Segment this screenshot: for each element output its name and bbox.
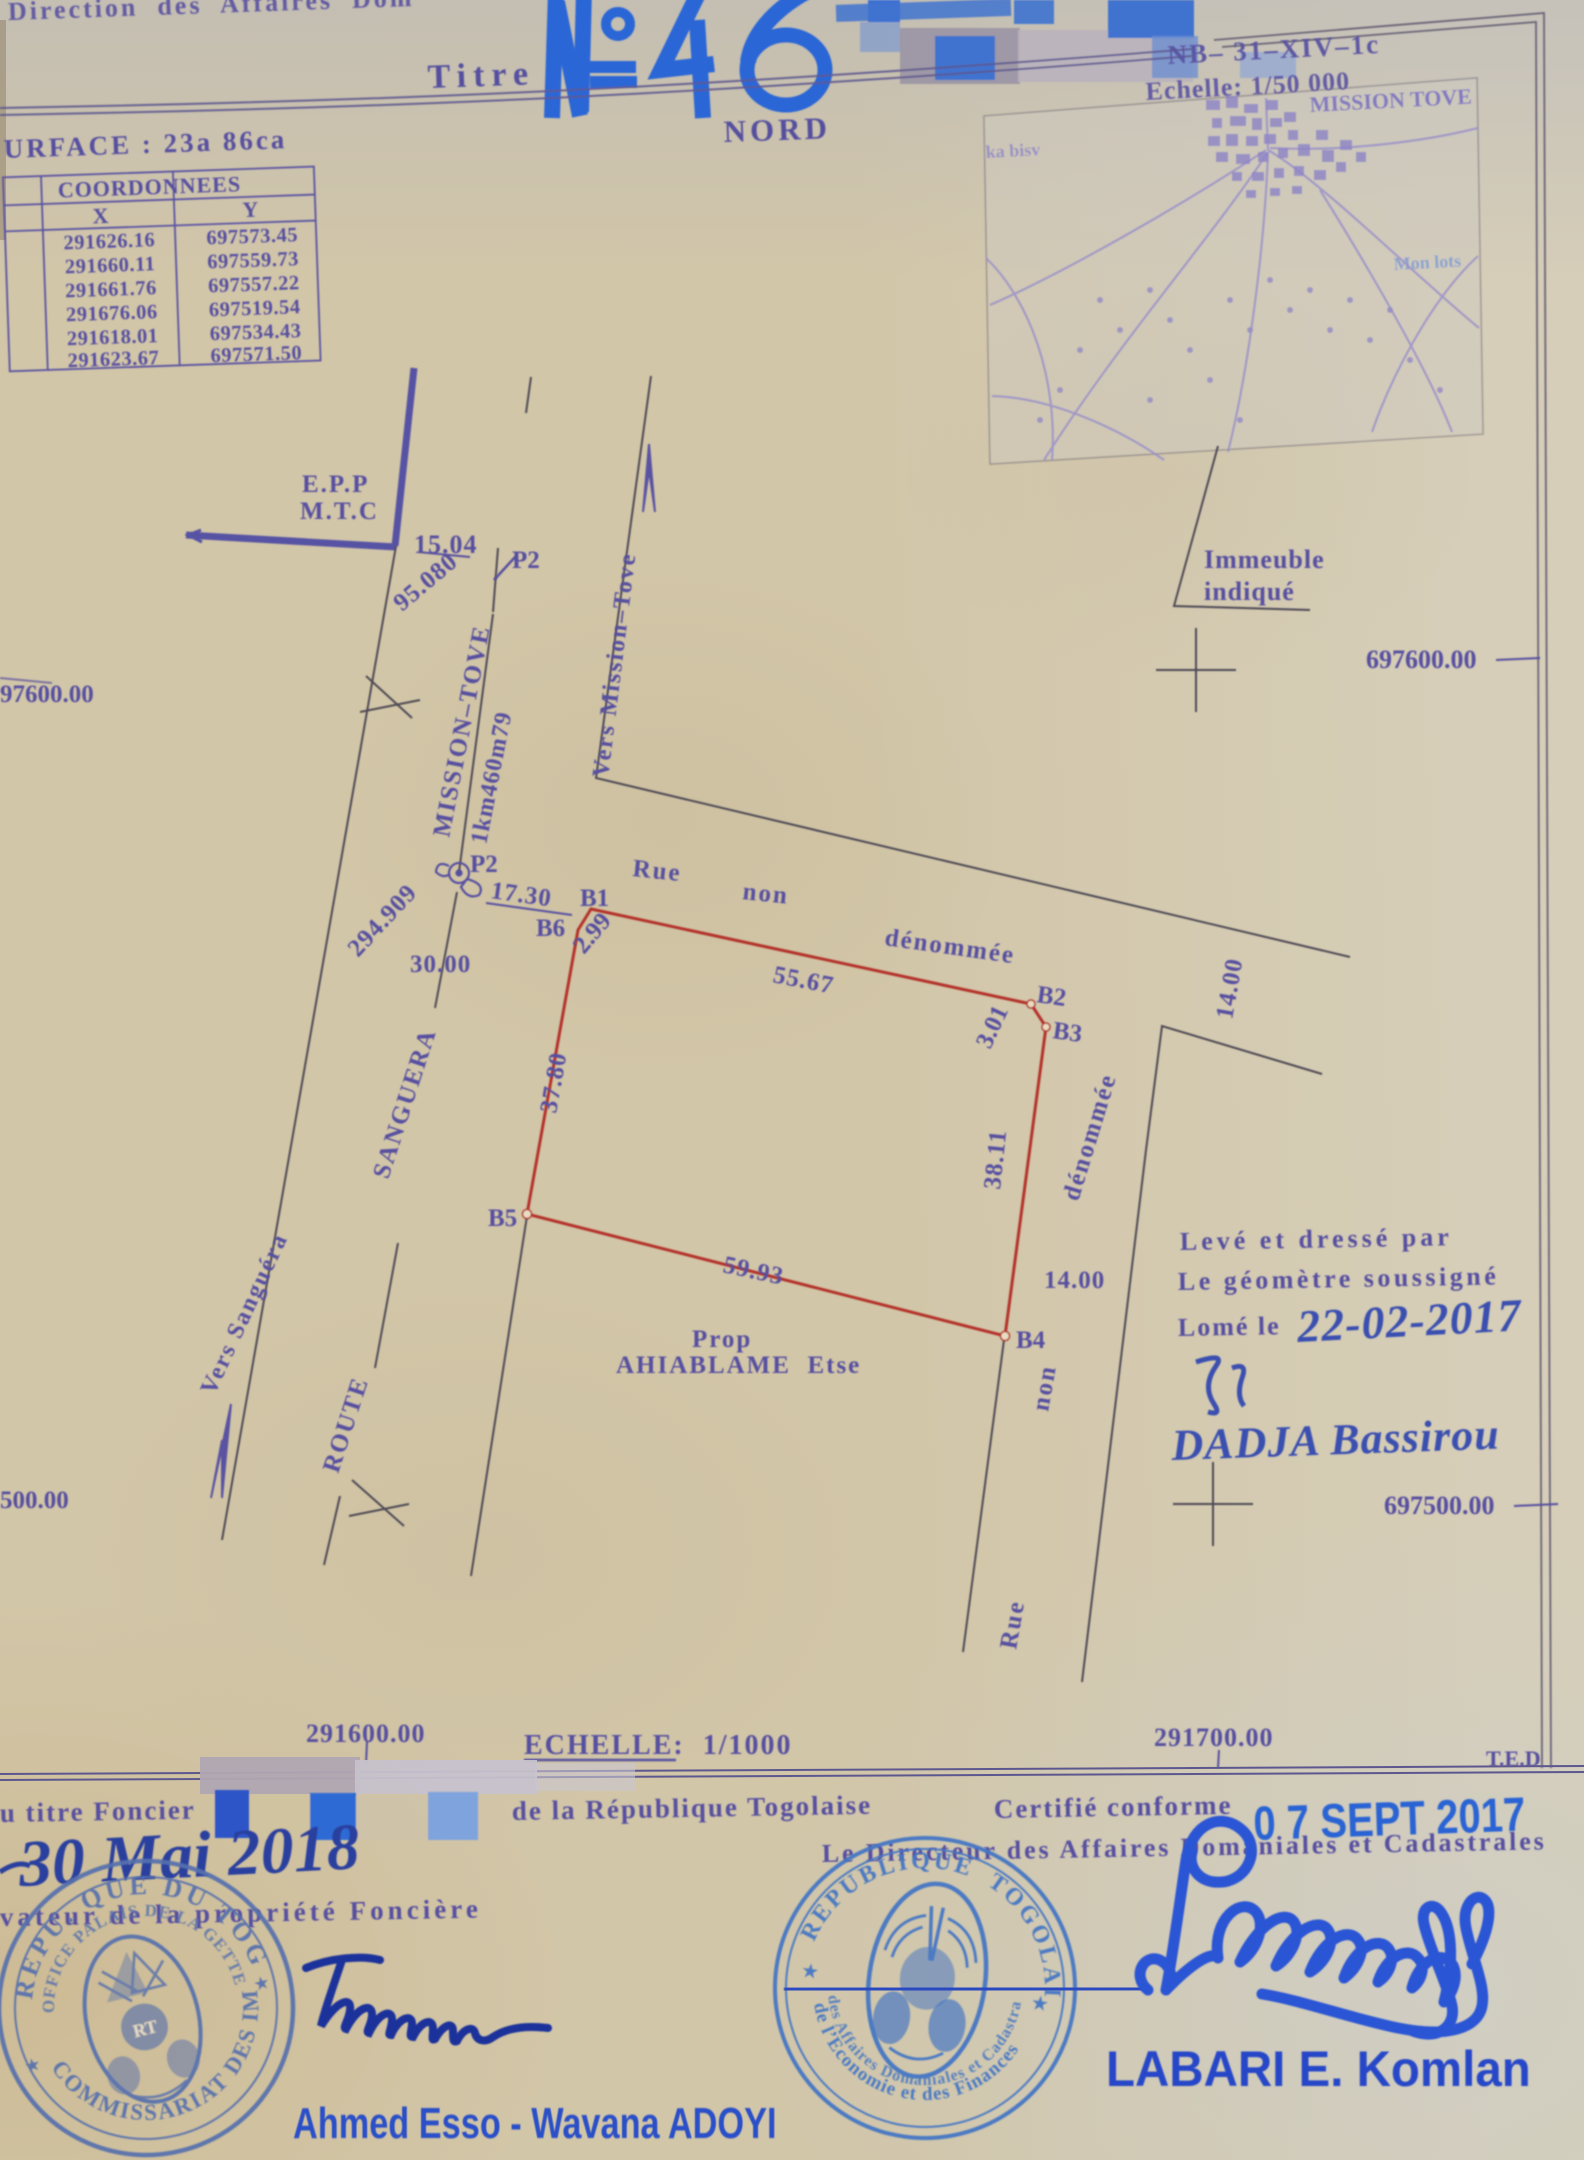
svg-text:Vers Mission–Tove: Vers Mission–Tove [588, 551, 641, 779]
svg-text:P2: P2 [512, 547, 540, 574]
svg-text:★: ★ [22, 2053, 42, 2076]
svg-text:3.01: 3.01 [971, 1001, 1014, 1052]
svg-text:de la République Togolaise: de la République Togolaise [512, 1790, 873, 1826]
svg-text:97600.00: 97600.00 [0, 681, 94, 708]
svg-text:B5: B5 [488, 1205, 517, 1232]
svg-text:LABARI E. Komlan: LABARI E. Komlan [1106, 2042, 1531, 2097]
svg-text:Titre: Titre [427, 55, 536, 96]
svg-text:NORD: NORD [723, 110, 831, 149]
svg-text:Rue: Rue [995, 1598, 1030, 1651]
svg-text:697519.54: 697519.54 [209, 296, 301, 321]
svg-text:Direction des Affaires Dom: Direction des Affaires Dom [7, 0, 414, 26]
svg-text:B6: B6 [536, 915, 565, 942]
svg-text:★: ★ [1029, 1992, 1050, 2016]
svg-text:Certifié conforme: Certifié conforme [994, 1790, 1233, 1824]
svg-text:URFACE : 23a 86ca: URFACE : 23a 86ca [3, 124, 288, 164]
svg-text:non: non [741, 878, 790, 910]
svg-text:291618.01: 291618.01 [67, 325, 159, 350]
svg-text:291623.67: 291623.67 [67, 347, 159, 372]
svg-text:NB– 31–XIV–1c: NB– 31–XIV–1c [1167, 29, 1381, 70]
svg-text:Rue: Rue [631, 855, 683, 887]
svg-text:697573.45: 697573.45 [206, 224, 298, 249]
svg-text:dénommée: dénommée [1058, 1070, 1122, 1203]
svg-text:697559.73: 697559.73 [207, 248, 299, 273]
svg-text:B2: B2 [1035, 981, 1068, 1012]
svg-text:Ahmed Esso - Wavana ADOYI: Ahmed Esso - Wavana ADOYI [293, 2099, 777, 2148]
svg-text:ECHELLE: 1/1000: ECHELLE: 1/1000 [524, 1730, 792, 1761]
svg-text:DADJA Bassirou: DADJA Bassirou [1170, 1410, 1501, 1470]
svg-text:Levé et dressé par: Levé et dressé par [1180, 1222, 1453, 1256]
svg-text:E.P.P: E.P.P [302, 471, 369, 498]
svg-text:291660.11: 291660.11 [65, 253, 156, 278]
svg-text:291676.06: 291676.06 [66, 301, 158, 326]
svg-text:697600.00: 697600.00 [1366, 645, 1477, 674]
svg-text:22-02-2017: 22-02-2017 [1295, 1289, 1524, 1352]
svg-text:indiqué: indiqué [1204, 577, 1295, 606]
svg-text:★: ★ [251, 1972, 271, 1995]
svg-text:non: non [1027, 1363, 1062, 1413]
svg-text:37.80: 37.80 [535, 1050, 572, 1115]
svg-text:Vers Sanguéra: Vers Sanguéra [196, 1229, 294, 1399]
svg-text:X: X [92, 203, 109, 229]
svg-text:Prop: Prop [692, 1326, 752, 1353]
svg-text:AHIABLAME Etse: AHIABLAME Etse [616, 1352, 861, 1379]
svg-text:59.93: 59.93 [721, 1251, 787, 1290]
svg-text:697557.22: 697557.22 [208, 272, 300, 297]
svg-text:291700.00: 291700.00 [1154, 1723, 1274, 1752]
svg-text:ROUTE: ROUTE [318, 1373, 374, 1475]
svg-text:dénommée: dénommée [883, 924, 1017, 969]
svg-text:Le géomètre soussigné: Le géomètre soussigné [1178, 1261, 1500, 1296]
svg-text:B1: B1 [580, 885, 609, 912]
svg-text:Lomé le: Lomé le [1178, 1311, 1281, 1342]
svg-text:291600.00: 291600.00 [306, 1719, 426, 1748]
svg-text:55.67: 55.67 [771, 961, 836, 999]
svg-text:Y: Y [242, 197, 259, 223]
svg-text:294.909: 294.909 [343, 879, 423, 962]
svg-text:B4: B4 [1016, 1327, 1046, 1354]
svg-text:M.T.C: M.T.C [300, 498, 379, 525]
svg-text:14.00: 14.00 [1211, 956, 1248, 1021]
svg-text:Immeuble: Immeuble [1204, 545, 1325, 574]
svg-text:30.00: 30.00 [410, 951, 471, 978]
svg-text:291626.16: 291626.16 [63, 229, 155, 254]
svg-text:697534.43: 697534.43 [209, 320, 301, 345]
svg-text:697500.00: 697500.00 [1384, 1491, 1495, 1520]
svg-text:B3: B3 [1051, 1017, 1084, 1048]
svg-text:697571.50: 697571.50 [210, 342, 302, 367]
svg-text:291661.76: 291661.76 [65, 277, 157, 302]
svg-text:ka bisv: ka bisv [985, 139, 1041, 162]
svg-text:SANGUERA: SANGUERA [368, 1025, 442, 1182]
svg-text:★: ★ [800, 1960, 821, 1984]
svg-text:38.11: 38.11 [979, 1128, 1012, 1190]
svg-text:14.00: 14.00 [1044, 1267, 1105, 1294]
svg-text:P2: P2 [470, 851, 498, 878]
svg-text:500.00: 500.00 [0, 1487, 69, 1514]
